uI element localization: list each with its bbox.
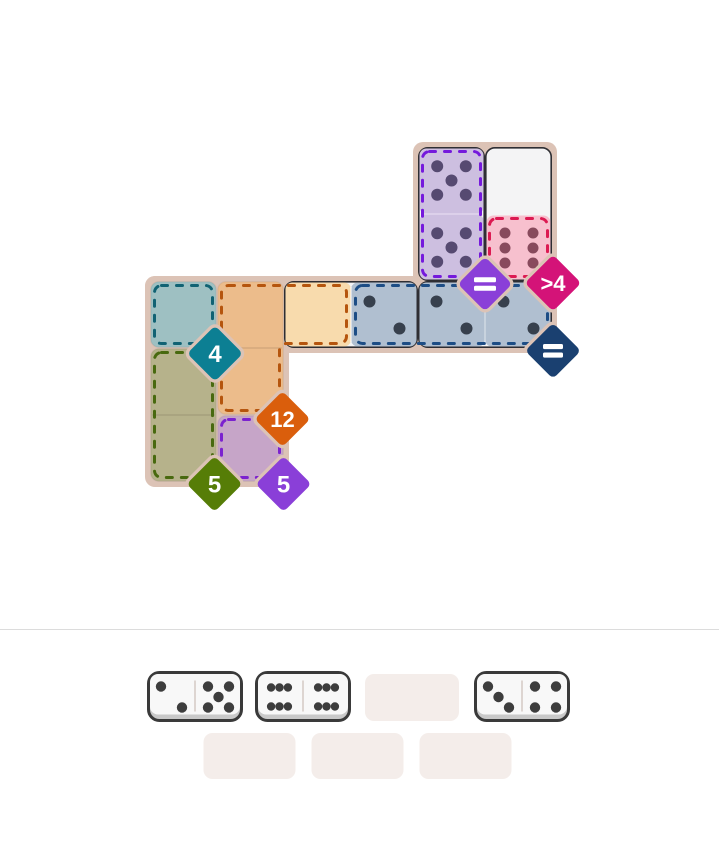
svg-text:4: 4 bbox=[208, 341, 222, 368]
svg-text:>4: >4 bbox=[540, 271, 566, 296]
svg-text:12: 12 bbox=[270, 407, 294, 432]
svg-text:5: 5 bbox=[208, 472, 221, 499]
svg-text:5: 5 bbox=[277, 472, 290, 499]
